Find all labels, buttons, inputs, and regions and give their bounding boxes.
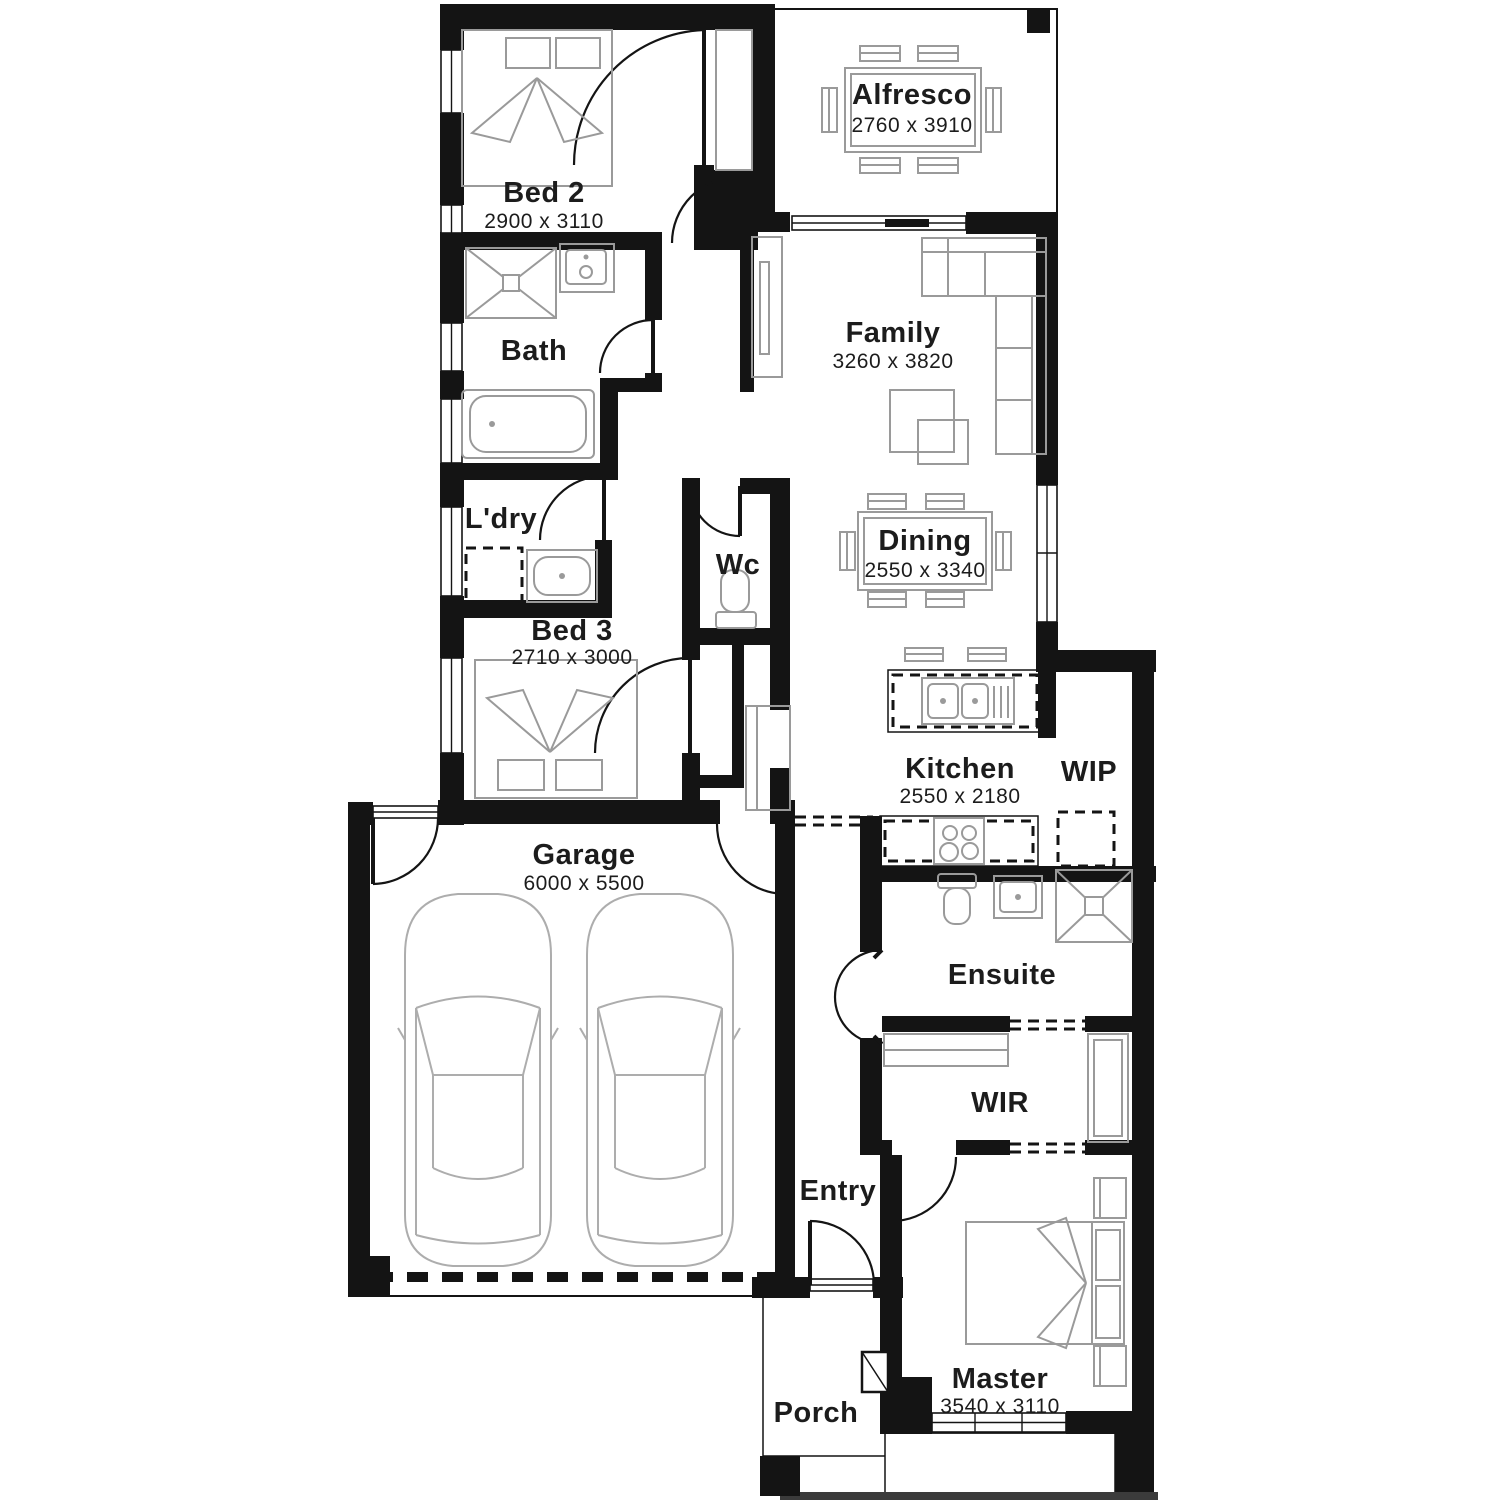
room-label-ldry: L'dry: [465, 503, 537, 535]
laundry-sink-icon: [527, 550, 597, 602]
pantry-shelf-icon: [1058, 812, 1114, 866]
room-label-bed2: Bed 2: [503, 177, 584, 209]
room-dims-dining: 2550 x 3340: [864, 559, 985, 582]
room-label-garage: Garage: [533, 839, 636, 871]
room-label-wir: WIR: [971, 1087, 1029, 1119]
porch-post: [760, 1456, 800, 1496]
room-label-wc: Wc: [716, 549, 761, 581]
walls: [348, 4, 1156, 1494]
room-dims-kitchen: 2550 x 2180: [899, 785, 1020, 808]
room-dims-family: 3260 x 3820: [832, 350, 953, 373]
room-label-master: Master: [952, 1363, 1049, 1395]
vanity-icon: [560, 244, 614, 292]
room-dims-bed2: 2900 x 3110: [484, 210, 604, 233]
island-bench-icon: [888, 670, 1042, 732]
room-label-bath: Bath: [501, 335, 567, 367]
car-icon-left: [398, 894, 558, 1266]
cooktop-bench-icon: [880, 816, 1038, 866]
window-bed3: [441, 658, 462, 753]
room-label-alfresco: Alfresco: [852, 79, 972, 111]
room-label-ensuite: Ensuite: [948, 959, 1056, 991]
room-dims-bed3: 2710 x 3000: [511, 646, 632, 669]
window-dining: [1037, 485, 1057, 622]
coffee-table-icon: [890, 390, 968, 464]
bed3-bed-icon: [475, 660, 637, 798]
door-ldry: [540, 476, 604, 540]
bed2-robe-icon: [716, 30, 752, 170]
window-bathtub: [441, 399, 462, 463]
door-bed2: [574, 30, 704, 165]
floor-plan-canvas: Bed 2 2900 x 3110 Alfresco 2760 x 3910 B…: [0, 0, 1500, 1500]
room-dims-master: 3540 x 3110: [940, 1395, 1060, 1418]
shower-icon: [466, 248, 556, 318]
room-label-wip: WIP: [1061, 756, 1117, 788]
room-label-bed3: Bed 3: [531, 615, 612, 647]
room-label-entry: Entry: [800, 1175, 877, 1207]
bathtub-icon: [462, 390, 594, 458]
door-bath: [600, 320, 653, 373]
ldry-fixtures: [466, 548, 597, 602]
window-bed2: [441, 50, 462, 113]
sofa-icon: [922, 238, 1046, 454]
bed2-bed-icon: [462, 30, 612, 186]
door-bed3: [595, 658, 690, 753]
washer-space-icon: [466, 548, 522, 602]
room-label-kitchen: Kitchen: [905, 753, 1015, 785]
garage-side-door-sill: [373, 806, 438, 818]
meter-box-icon: [862, 1352, 888, 1392]
window-ldry: [441, 507, 462, 596]
tv-unit-icon: [752, 237, 782, 377]
floor-plan-page: Bed 2 2900 x 3110 Alfresco 2760 x 3910 B…: [0, 0, 1500, 1500]
driveway-strip: [780, 1492, 1158, 1500]
ensuite-vanity-icon: [994, 876, 1042, 918]
dashed-openings: [372, 817, 1085, 1277]
room-dims-garage: 6000 x 5500: [523, 872, 644, 895]
window-bath-mid: [441, 323, 462, 371]
door-garage-internal: [717, 824, 782, 894]
master-bed-icon: [966, 1178, 1126, 1386]
room-label-family: Family: [846, 317, 941, 349]
door-ensuite-double: [835, 950, 882, 1044]
window-bath-upper: [441, 205, 462, 233]
door-front: [810, 1221, 874, 1285]
sliding-door-alfresco: [792, 216, 966, 230]
car-icon-right: [580, 894, 740, 1266]
room-label-porch: Porch: [774, 1397, 859, 1429]
door-garage-side: [373, 818, 438, 884]
front-door-sill: [810, 1279, 873, 1291]
room-label-dining: Dining: [878, 525, 971, 557]
room-dims-alfresco: 2760 x 3910: [851, 114, 972, 137]
